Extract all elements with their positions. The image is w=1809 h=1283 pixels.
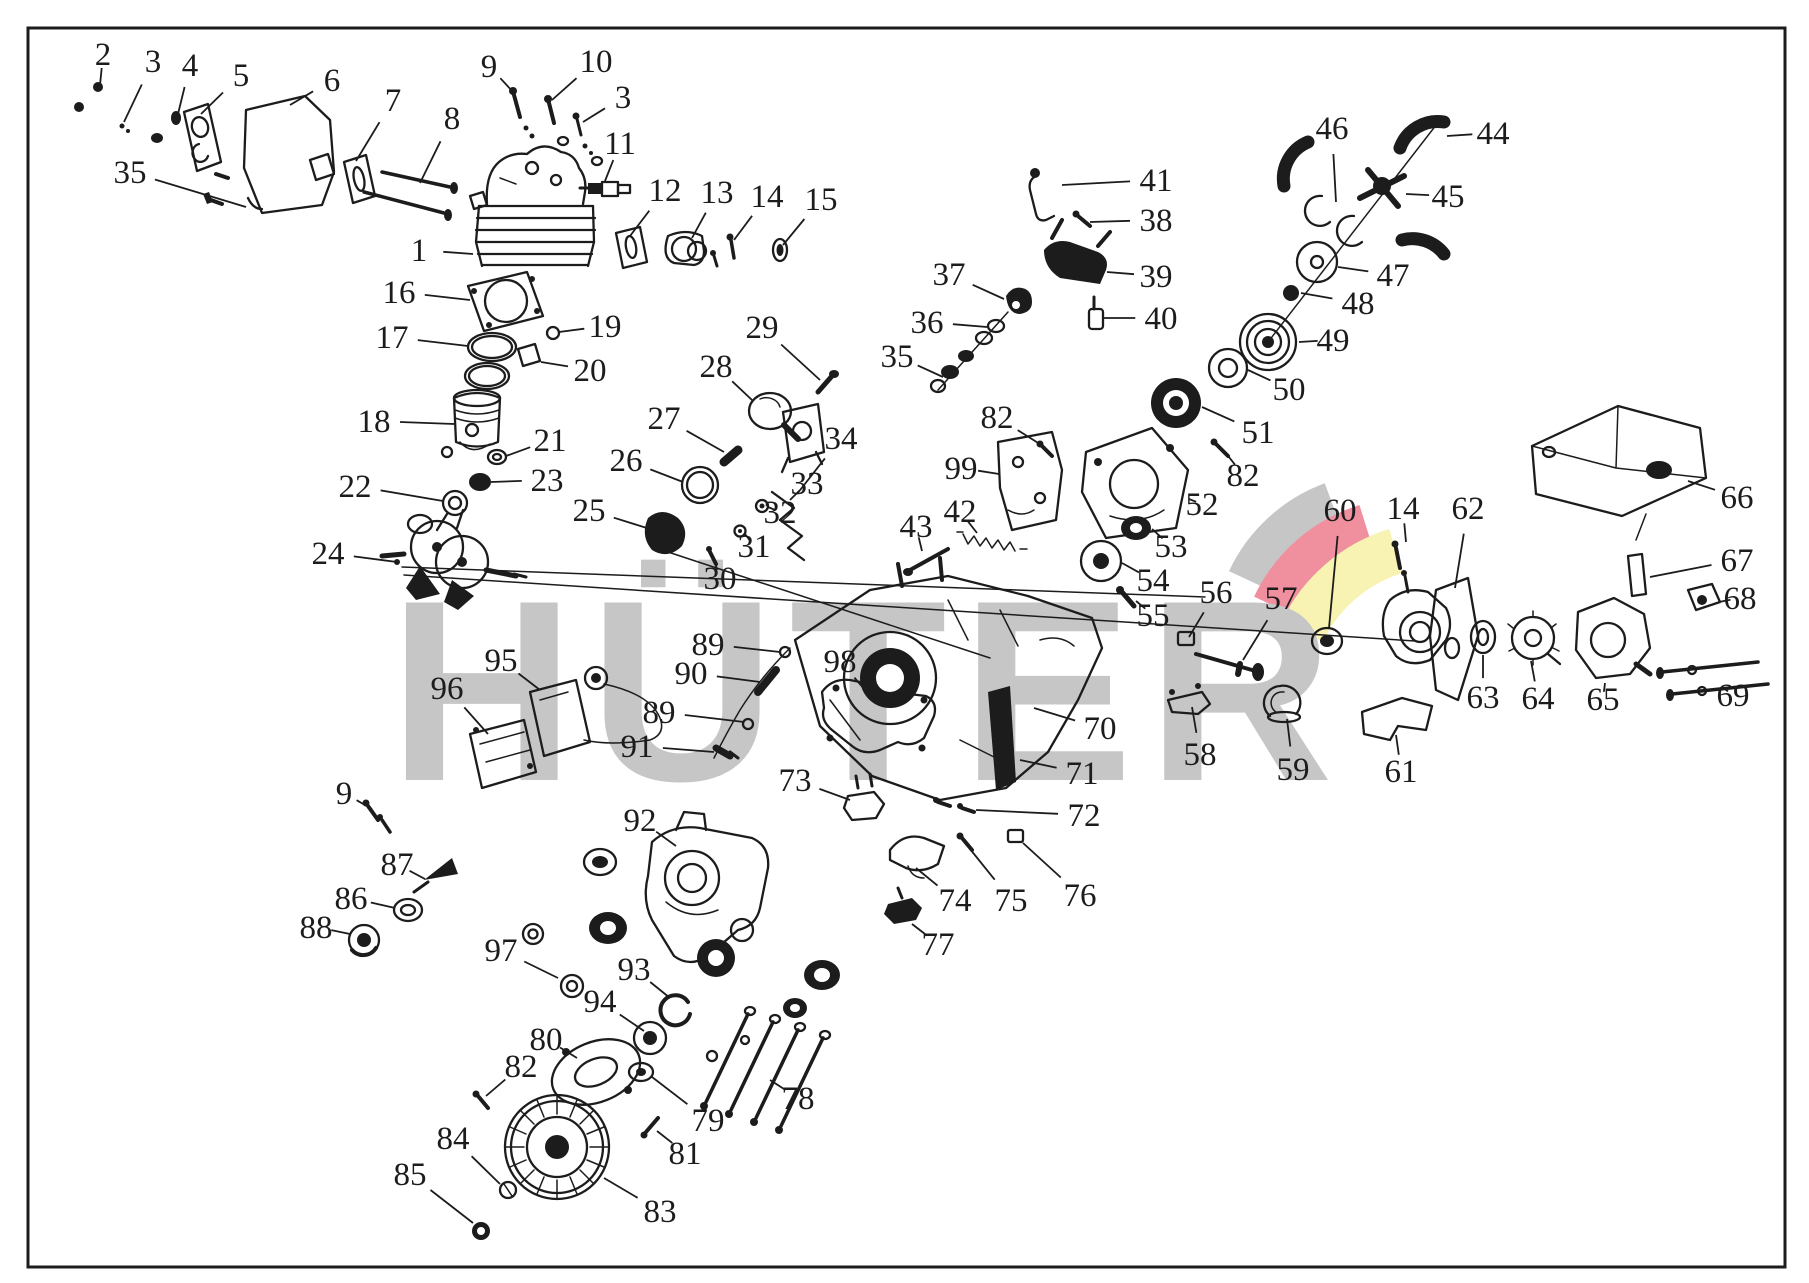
part-number-93: 93 [618,952,651,988]
leader-line [604,1178,638,1198]
part-number-22: 22 [339,469,372,505]
leader-line [614,518,650,529]
part-number-5: 5 [233,58,250,94]
part-number-74: 74 [939,883,972,919]
part-number-39: 39 [1140,259,1173,295]
leader-line [506,447,530,456]
leader-line [155,180,246,208]
part-number-18: 18 [358,404,391,440]
leader-line [1248,370,1271,380]
part-number-70: 70 [1084,711,1117,747]
part-number-2: 2 [95,37,112,73]
part-number-21: 21 [534,423,567,459]
part-number-61: 61 [1385,754,1418,790]
leader-line [953,324,987,327]
part-number-35: 35 [114,155,147,191]
part-number-55: 55 [1137,598,1170,634]
part-number-12: 12 [649,173,682,209]
part-number-24: 24 [312,536,345,572]
part-number-98: 98 [824,644,857,680]
part-number-54: 54 [1137,563,1170,599]
leader-line [491,481,522,482]
part-number-49: 49 [1317,323,1350,359]
part-number-84: 84 [437,1121,470,1157]
part-number-91: 91 [621,729,654,765]
part-number-57: 57 [1265,581,1298,617]
leader-line [918,365,943,377]
leader-line [1023,843,1061,878]
part-number-15: 15 [805,182,838,218]
part-number-78: 78 [782,1081,815,1117]
leader-line [500,78,514,93]
leader-line [178,87,185,114]
part-number-82: 82 [1227,458,1260,494]
part-number-23: 23 [531,463,564,499]
leader-line [650,469,683,482]
part-number-68: 68 [1724,581,1757,617]
part-number-27: 27 [648,401,681,437]
leader-line [443,252,473,254]
exploded-parts-diagram: HÜTER [0,0,1809,1283]
leader-line [425,295,470,300]
leader-line [1333,154,1336,202]
leader-line [418,340,468,346]
part-number-29: 29 [746,310,779,346]
part-number-99: 99 [945,451,978,487]
leader-line [687,431,724,452]
leader-line [1299,341,1318,342]
part-number-72: 72 [1068,798,1101,834]
part-number-81: 81 [669,1136,702,1172]
part-number-67: 67 [1721,543,1754,579]
part-number-63: 63 [1467,680,1500,716]
part-number-14: 14 [751,179,784,215]
leader-line [630,211,649,236]
part-number-3: 3 [615,80,632,116]
part-number-8: 8 [444,101,461,137]
leader-line [1396,735,1399,755]
leader-line [1202,407,1234,421]
part-number-13: 13 [701,175,734,211]
part-number-64: 64 [1522,681,1555,717]
part-number-19: 19 [589,309,622,345]
part-number-4: 4 [182,48,199,84]
part-number-90: 90 [675,656,708,692]
leader-line [356,122,380,161]
part-number-82: 82 [505,1049,538,1085]
part-number-56: 56 [1200,575,1233,611]
part-number-53: 53 [1155,529,1188,565]
part-number-92: 92 [624,803,657,839]
part-number-17: 17 [376,320,409,356]
part-number-36: 36 [911,305,944,341]
part-number-48: 48 [1342,286,1375,322]
part-number-34: 34 [825,421,858,457]
part-number-26: 26 [610,443,643,479]
leader-line [650,982,670,998]
part-number-37: 37 [933,257,966,293]
part-number-52: 52 [1186,487,1219,523]
part-number-32: 32 [764,495,797,531]
leader-line [1406,194,1429,195]
part-number-35: 35 [881,339,914,375]
part-number-59: 59 [1277,752,1310,788]
leader-line [552,78,577,100]
leader-line [559,329,584,332]
part-number-66: 66 [1721,480,1754,516]
part-number-65: 65 [1587,682,1620,718]
leader-line [371,903,395,909]
leader-line [1062,181,1130,185]
leader-line [420,141,441,183]
leader-line [431,1190,474,1223]
leader-line [486,1080,505,1097]
part-number-95: 95 [485,643,518,679]
part-number-45: 45 [1432,179,1465,215]
part-number-60: 60 [1324,493,1357,529]
part-number-76: 76 [1064,878,1097,914]
leader-line [652,1077,687,1104]
part-number-40: 40 [1145,301,1178,337]
part-number-89: 89 [643,695,676,731]
part-number-43: 43 [900,509,933,545]
part-number-30: 30 [704,561,737,597]
part-number-11: 11 [604,126,636,162]
part-number-9: 9 [481,49,498,85]
part-number-69: 69 [1717,678,1750,714]
part-number-85: 85 [394,1157,427,1193]
leader-line [732,381,752,400]
leader-line [472,1156,500,1184]
leader-line [541,362,568,366]
part-number-86: 86 [335,881,368,917]
part-number-10: 10 [580,44,613,80]
leader-line [201,93,223,115]
leader-line [400,422,454,424]
part-number-6: 6 [324,63,341,99]
leader-line [1090,221,1130,222]
leader-line [978,471,999,474]
part-number-50: 50 [1273,372,1306,408]
part-number-9: 9 [336,776,353,812]
leader-line [970,849,995,880]
leader-line [1301,293,1332,299]
leader-line [1650,565,1712,577]
part-number-47: 47 [1377,258,1410,294]
part-number-20: 20 [574,353,607,389]
leader-line [583,108,605,122]
part-number-94: 94 [584,984,617,1020]
leader-line [973,285,1004,299]
part-number-25: 25 [573,493,606,529]
part-number-44: 44 [1477,116,1510,152]
leader-line [331,930,350,934]
leader-line [605,160,613,181]
part-number-1: 1 [411,233,428,269]
part-number-31: 31 [738,529,771,565]
leader-line [1107,272,1134,274]
leader-line [783,219,804,245]
part-number-7: 7 [385,83,402,119]
part-number-46: 46 [1316,111,1349,147]
leader-line [524,962,558,979]
leader-line [734,216,752,240]
leader-line [381,490,443,501]
leader-line [781,345,820,381]
part-number-58: 58 [1184,737,1217,773]
part-number-73: 73 [779,763,812,799]
leader-line [1338,267,1368,271]
part-number-97: 97 [485,933,518,969]
part-number-38: 38 [1140,203,1173,239]
part-number-71: 71 [1066,756,1099,792]
leader-line [124,85,142,123]
part-number-14: 14 [1387,491,1420,527]
part-number-42: 42 [944,494,977,530]
part-number-3: 3 [145,44,162,80]
part-number-62: 62 [1452,491,1485,527]
leader-line [1447,134,1472,136]
part-number-82: 82 [981,400,1014,436]
part-number-77: 77 [922,927,955,963]
part-number-41: 41 [1140,163,1173,199]
part-number-83: 83 [644,1194,677,1230]
part-number-75: 75 [995,883,1028,919]
part-number-51: 51 [1242,415,1275,451]
part-number-87: 87 [381,847,414,883]
part-number-28: 28 [700,349,733,385]
part-number-88: 88 [300,910,333,946]
leader-line [620,1015,644,1032]
part-number-79: 79 [692,1103,725,1139]
part-number-16: 16 [383,275,416,311]
part-number-96: 96 [431,671,464,707]
